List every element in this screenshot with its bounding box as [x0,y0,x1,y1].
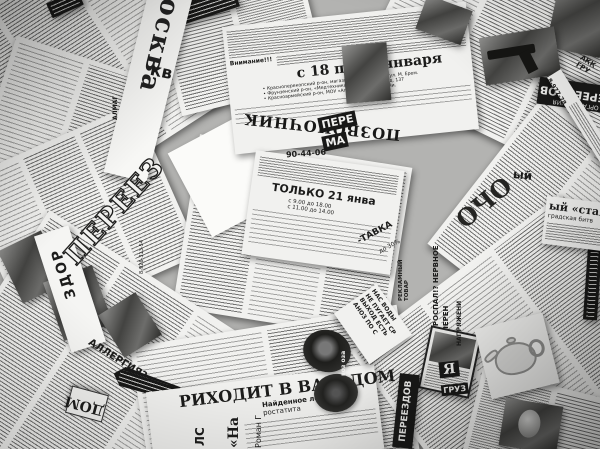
phone-fragment-2: 8-926-313-54 [139,230,145,274]
tolko-21-scrap: ТОЛЬКО 21 янва с 9.00 до 18.00 с 11.00 д… [241,150,404,275]
newspaper-collage-photo: осква кв АЛМАГ Внимание!!! с 18 по 21 ян… [0,0,600,449]
pere-block: ПЕРЕ [317,110,358,133]
ya-gruz-logo: Я ГРУЗ [438,357,469,398]
pereezdov-vertical-label: ПЕРЕЕЗДОВ [397,376,414,447]
na-fragment: «На [226,408,242,448]
stal-article-scrap: ый «стал градская битв [541,196,600,252]
pere-ma-blocks: ПЕРЕ МА [316,106,361,151]
face-highlight [516,408,542,439]
gruz-block: ГРУЗ [441,383,469,397]
prospal-column: ПРОСПАЛ!? НЕРВНОЕ ПЕРЕН [432,244,452,332]
yy-fragment: ый [512,167,533,183]
voz-label: воз [340,365,347,376]
napryazheni-column: НАПРЯЖЕНИ [456,300,463,346]
ad-figure-photo [342,42,392,104]
ya-block: Я [438,360,460,378]
handgun-grip [519,49,539,74]
kv-fragment: кв [148,60,174,84]
oza-label: оза [340,351,347,363]
voz-oza-labels: воз оза [340,342,348,376]
ls-fragment: ЛС [193,416,207,446]
reklamny-strip: РЕКЛАМНЫЙ ТОВАР [398,243,410,301]
roman-byline: Роман Г [254,404,263,448]
bottom-right-face-photo [499,398,564,449]
almag-fragment: АЛМАГ [112,90,119,120]
